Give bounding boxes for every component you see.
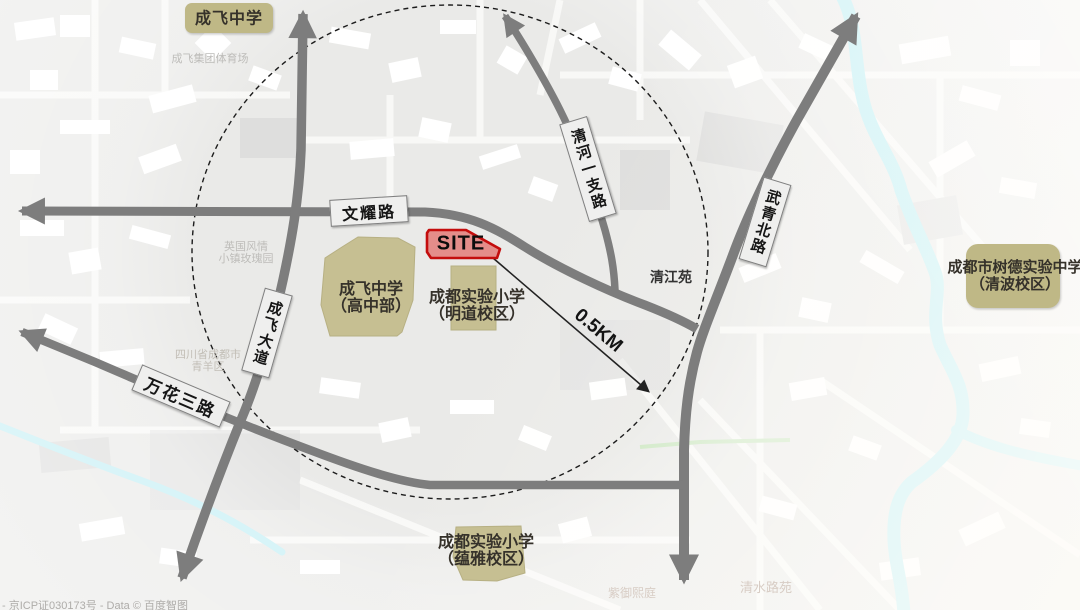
school-parcels	[321, 237, 525, 581]
site-polygon	[427, 230, 500, 258]
map-attribution: - 京ICP证030173号 - Data © 百度智图	[2, 597, 188, 610]
annotation-layer	[0, 0, 1080, 610]
chengfei-avenue-path	[182, 14, 303, 578]
chengfei-high-parcel	[321, 237, 415, 336]
site-location-map: 成飞中学 文耀路 万花三路 成飞大道 清河一支路 武青北路 SITE 0.5KM…	[0, 0, 1080, 610]
main-roads	[22, 14, 856, 580]
wuqing-north-road-path	[684, 16, 856, 580]
distance-dimension-line	[493, 258, 648, 391]
yunya-parcel	[453, 526, 525, 581]
mingdao-parcel	[451, 266, 496, 330]
wanhua-3rd-road-path	[22, 332, 683, 485]
